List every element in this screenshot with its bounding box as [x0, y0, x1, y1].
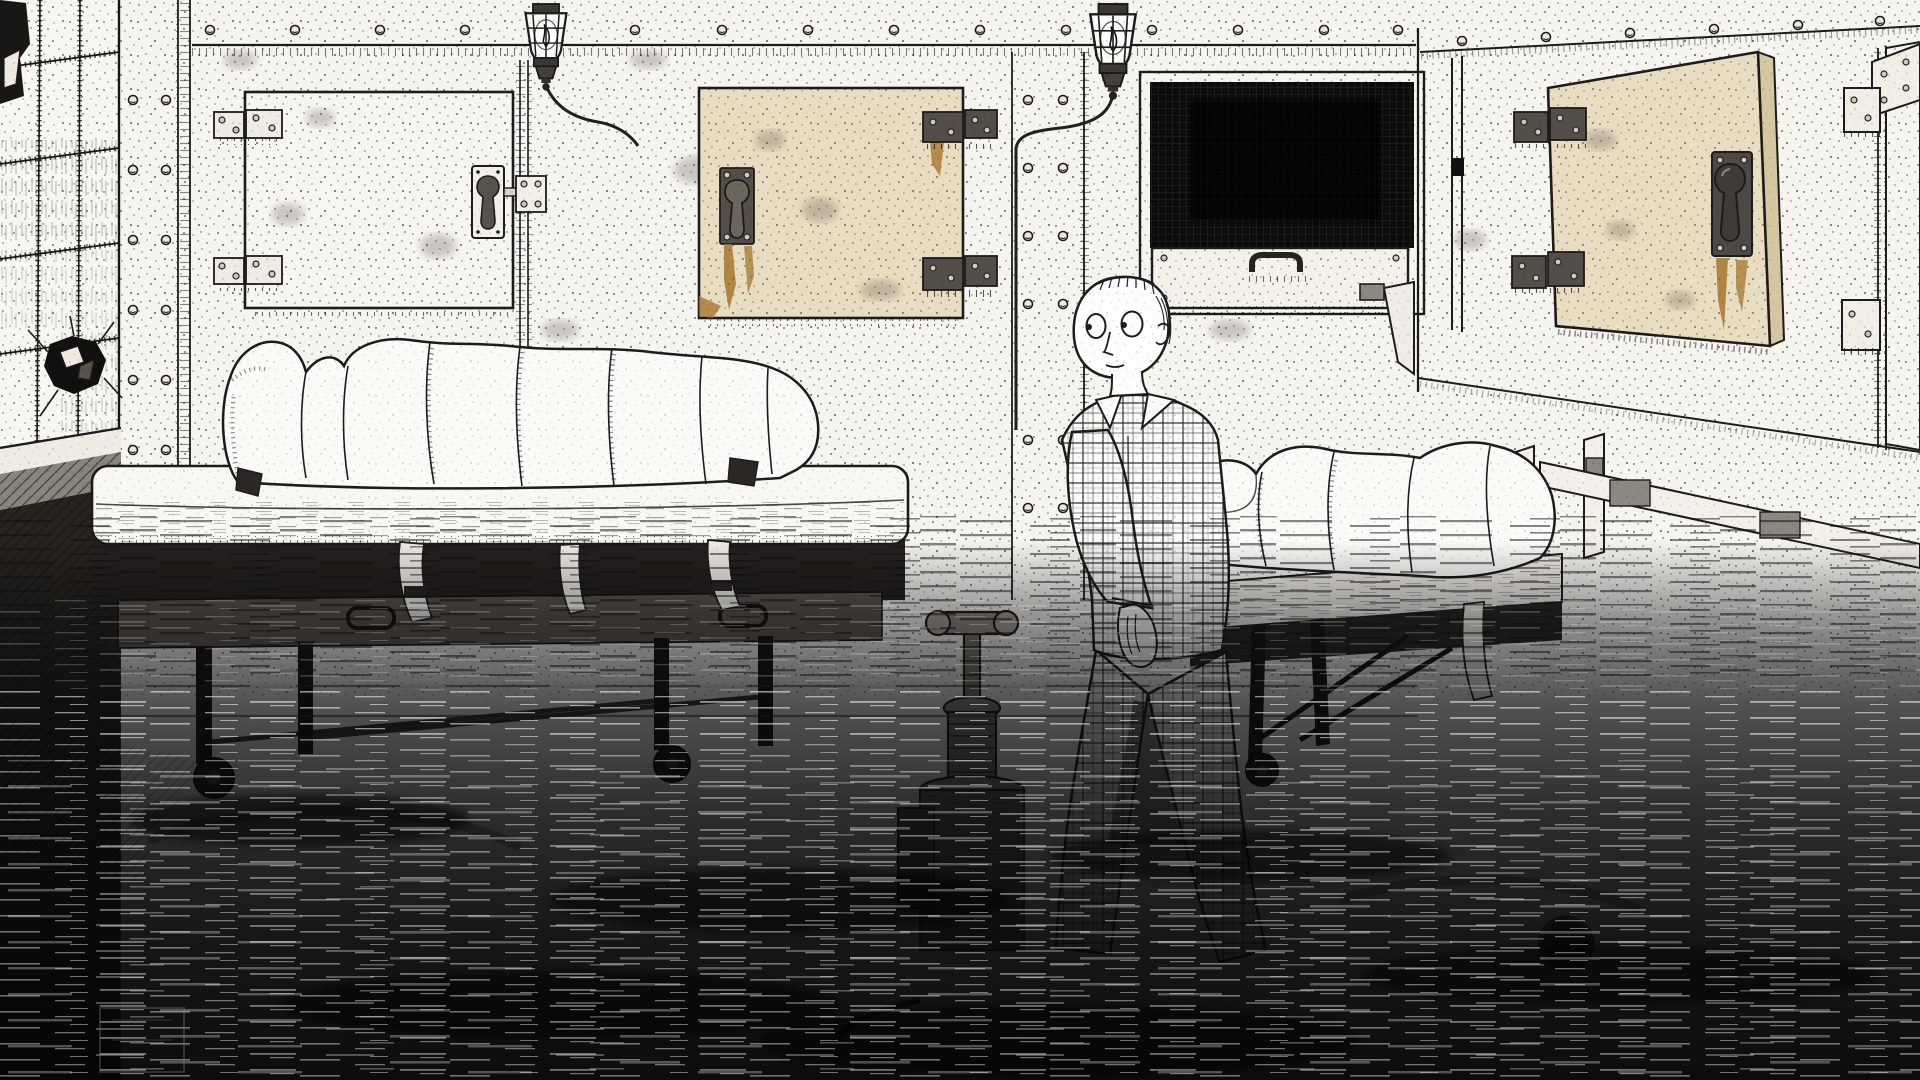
game-viewport	[0, 0, 1920, 1080]
flood-water	[0, 516, 1920, 1080]
paper-grain	[0, 0, 1920, 560]
